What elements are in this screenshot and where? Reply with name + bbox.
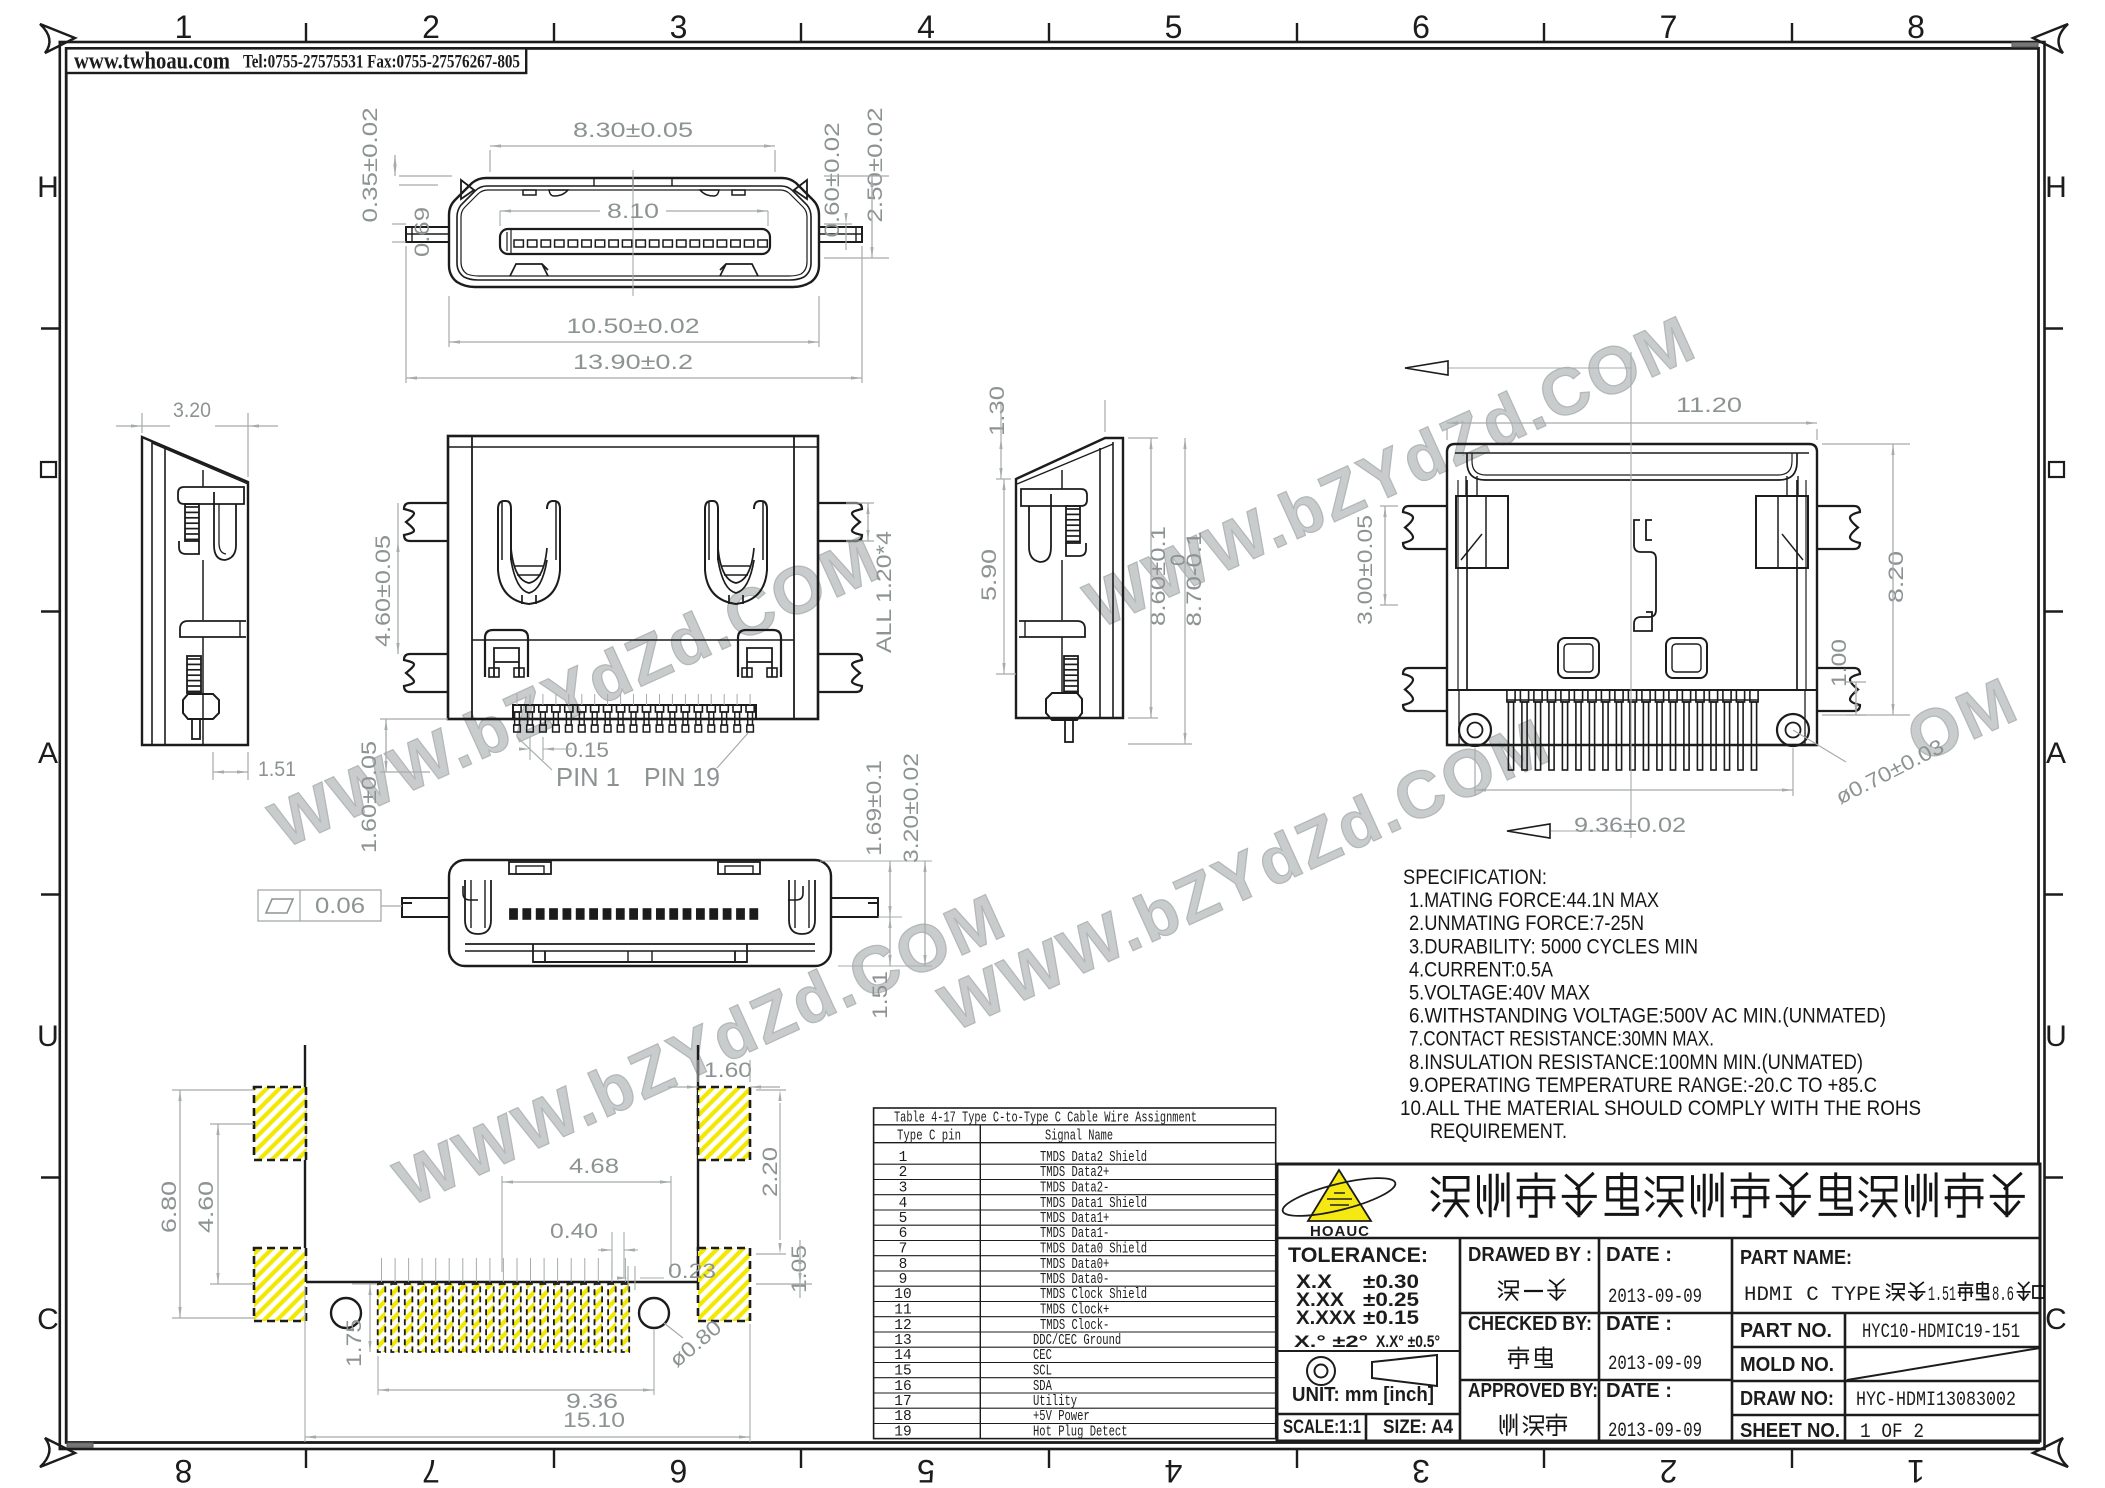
- svg-text:10.ALL THE MATERIAL SHOULD COM: 10.ALL THE MATERIAL SHOULD COMPLY WITH T…: [1400, 1096, 1921, 1120]
- svg-text:Hot Plug Detect: Hot Plug Detect: [1033, 1425, 1128, 1441]
- svg-text:13: 13: [894, 1333, 911, 1349]
- svg-text:6: 6: [899, 1226, 908, 1242]
- svg-text:7.CONTACT RESISTANCE:30MN MAX.: 7.CONTACT RESISTANCE:30MN MAX.: [1409, 1027, 1714, 1051]
- svg-text:HYC-HDMI13083002: HYC-HDMI13083002: [1856, 1389, 2016, 1412]
- svg-text:9.OPERATING TEMPERATURE RANGE:: 9.OPERATING TEMPERATURE RANGE:-20.C TO +…: [1409, 1073, 1877, 1097]
- svg-text:CEC: CEC: [1033, 1348, 1052, 1364]
- svg-text:0: 0: [1167, 554, 1190, 566]
- svg-text:1.00: 1.00: [1828, 639, 1851, 687]
- svg-text:4: 4: [917, 9, 935, 45]
- svg-text:X.X° ±0.5°: X.X° ±0.5°: [1376, 1332, 1440, 1351]
- svg-text:8: 8: [175, 1453, 193, 1488]
- svg-text:TMDS Data2 Shield: TMDS Data2 Shield: [1040, 1150, 1147, 1166]
- svg-text:1.75: 1.75: [343, 1319, 366, 1367]
- svg-text:REQUIREMENT.: REQUIREMENT.: [1430, 1119, 1567, 1143]
- svg-text:5: 5: [899, 1211, 908, 1227]
- svg-text:3: 3: [899, 1181, 908, 1197]
- svg-text:0.60±0.02: 0.60±0.02: [821, 123, 844, 238]
- svg-text:Utility: Utility: [1033, 1394, 1077, 1410]
- svg-text:DRAWED BY :: DRAWED BY :: [1468, 1244, 1592, 1266]
- svg-text:4.68: 4.68: [569, 1155, 619, 1178]
- svg-text:8.20: 8.20: [1885, 551, 1908, 603]
- svg-text:SPECIFICATION:: SPECIFICATION:: [1403, 865, 1547, 889]
- svg-text:2: 2: [899, 1165, 908, 1181]
- svg-text:5.90: 5.90: [978, 549, 1001, 601]
- svg-text:8.70-0.1: 8.70-0.1: [1183, 532, 1206, 627]
- svg-text:4.CURRENT:0.5A: 4.CURRENT:0.5A: [1409, 957, 1554, 981]
- svg-text:0.15: 0.15: [565, 739, 609, 762]
- svg-text:16: 16: [894, 1379, 911, 1395]
- svg-text:C: C: [37, 1303, 59, 1336]
- svg-text:2013-09-09: 2013-09-09: [1608, 1353, 1702, 1376]
- svg-text:+5V Power: +5V Power: [1033, 1409, 1090, 1425]
- svg-text:UNIT: mm [inch]: UNIT: mm [inch]: [1292, 1384, 1434, 1406]
- svg-text:SDA: SDA: [1033, 1379, 1052, 1395]
- svg-text:0.69: 0.69: [411, 207, 434, 257]
- svg-text:U: U: [2045, 1020, 2067, 1053]
- svg-text:2.20: 2.20: [759, 1147, 782, 1197]
- svg-text:15: 15: [894, 1364, 911, 1380]
- svg-text:1.60±0.05: 1.60±0.05: [358, 741, 381, 853]
- svg-text:10.50±0.02: 10.50±0.02: [567, 315, 700, 338]
- svg-text:5.VOLTAGE:40V MAX: 5.VOLTAGE:40V MAX: [1409, 981, 1590, 1005]
- svg-text:8.30±0.05: 8.30±0.05: [573, 119, 693, 142]
- svg-text:TMDS Data2-: TMDS Data2-: [1040, 1181, 1109, 1197]
- svg-text:TMDS Clock+: TMDS Clock+: [1040, 1303, 1109, 1319]
- svg-text:0.35±0.02: 0.35±0.02: [359, 108, 382, 223]
- svg-text:11.20: 11.20: [1676, 394, 1742, 417]
- svg-text:C: C: [2045, 1303, 2067, 1336]
- svg-text:11: 11: [894, 1303, 911, 1319]
- svg-text:1.60: 1.60: [704, 1059, 752, 1082]
- svg-text:CHECKED BY:: CHECKED BY:: [1468, 1313, 1592, 1335]
- svg-text:14: 14: [894, 1348, 911, 1364]
- svg-text:1: 1: [175, 9, 193, 45]
- svg-text:3: 3: [670, 9, 688, 45]
- svg-text:Type C pin: Type C pin: [897, 1129, 961, 1145]
- svg-text:PIN 1: PIN 1: [556, 762, 620, 792]
- svg-text:TMDS Data1 Shield: TMDS Data1 Shield: [1040, 1196, 1147, 1212]
- svg-text:DATE :: DATE :: [1606, 1380, 1672, 1402]
- svg-text:DATE :: DATE :: [1606, 1244, 1672, 1266]
- svg-text:DATE :: DATE :: [1606, 1313, 1672, 1335]
- svg-text:15.10: 15.10: [563, 1409, 625, 1432]
- svg-text:17: 17: [894, 1394, 911, 1410]
- svg-text:3.DURABILITY: 5000 CYCLES MIN: 3.DURABILITY: 5000 CYCLES MIN: [1409, 934, 1698, 958]
- svg-text:7: 7: [899, 1242, 908, 1258]
- svg-text:8.INSULATION RESISTANCE:100MN: 8.INSULATION RESISTANCE:100MN MIN.(UNMAT…: [1409, 1050, 1863, 1074]
- svg-text:2013-09-09: 2013-09-09: [1608, 1286, 1702, 1309]
- svg-text:8.6: 8.6: [1992, 1284, 2014, 1307]
- svg-text:4: 4: [899, 1196, 908, 1212]
- svg-text:5: 5: [1165, 9, 1183, 45]
- svg-text:10: 10: [894, 1287, 911, 1303]
- svg-text:HYC10-HDMIC19-151: HYC10-HDMIC19-151: [1862, 1321, 2020, 1344]
- svg-text:TMDS Data0+: TMDS Data0+: [1040, 1257, 1109, 1273]
- svg-text:www.twhoau.com: www.twhoau.com: [74, 49, 230, 75]
- svg-text:2: 2: [422, 9, 440, 45]
- svg-text:7: 7: [1660, 9, 1678, 45]
- svg-text:SIZE: A4: SIZE: A4: [1383, 1417, 1453, 1438]
- svg-text:6: 6: [1412, 9, 1430, 45]
- svg-text:Tel:0755-27575531 Fax:0755-27: Tel:0755-27575531 Fax:0755-27576267-805: [243, 52, 520, 73]
- svg-text:Table 4-17 Type C-to-Type C Ca: Table 4-17 Type C-to-Type C Cable Wire A…: [894, 1111, 1197, 1127]
- svg-text:TMDS Data0-: TMDS Data0-: [1040, 1272, 1109, 1288]
- svg-text:U: U: [37, 1020, 59, 1053]
- svg-text:TMDS Data0 Shield: TMDS Data0 Shield: [1040, 1242, 1147, 1258]
- svg-text:1: 1: [899, 1150, 908, 1166]
- svg-text:0.23: 0.23: [668, 1260, 716, 1283]
- svg-text:6: 6: [670, 1453, 688, 1488]
- svg-text:2.50±0.02: 2.50±0.02: [864, 108, 887, 223]
- svg-text:TOLERANCE:: TOLERANCE:: [1288, 1244, 1428, 1267]
- svg-text:5: 5: [917, 1453, 935, 1488]
- svg-text:PIN 19: PIN 19: [644, 762, 720, 792]
- svg-text:H: H: [2045, 171, 2067, 204]
- svg-text:1.MATING FORCE:44.1N MAX: 1.MATING FORCE:44.1N MAX: [1409, 888, 1659, 912]
- svg-text:1.51: 1.51: [1928, 1284, 1956, 1307]
- svg-text:19: 19: [894, 1425, 911, 1441]
- svg-text:TMDS Clock-: TMDS Clock-: [1040, 1318, 1109, 1334]
- svg-text:13.90±0.2: 13.90±0.2: [573, 351, 693, 374]
- svg-text:3.20±0.02: 3.20±0.02: [900, 753, 923, 863]
- svg-text:7: 7: [422, 1453, 440, 1488]
- svg-text:6.WITHSTANDING VOLTAGE:500V AC: 6.WITHSTANDING VOLTAGE:500V AC MIN.(UNMA…: [1409, 1004, 1886, 1028]
- svg-text:A: A: [2046, 737, 2066, 770]
- svg-text:TMDS Data1-: TMDS Data1-: [1040, 1226, 1109, 1242]
- svg-text:X.° ±2°: X.° ±2°: [1294, 1332, 1368, 1351]
- svg-text:TMDS Clock Shield: TMDS Clock Shield: [1040, 1287, 1147, 1303]
- svg-text:0.40: 0.40: [550, 1220, 598, 1243]
- svg-text:1.30: 1.30: [986, 386, 1009, 436]
- svg-text:HDMI C TYPE: HDMI C TYPE: [1744, 1284, 1881, 1307]
- svg-text:TMDS Data1+: TMDS Data1+: [1040, 1211, 1109, 1227]
- svg-text:PART NO.: PART NO.: [1740, 1320, 1832, 1342]
- svg-text:PART NAME:: PART NAME:: [1740, 1247, 1852, 1269]
- svg-text:6.80: 6.80: [158, 1181, 181, 1233]
- svg-text:2013-09-09: 2013-09-09: [1608, 1420, 1702, 1443]
- svg-text:2: 2: [1660, 1453, 1678, 1488]
- svg-text:3.00±0.05: 3.00±0.05: [1354, 515, 1377, 625]
- svg-text:3.20: 3.20: [173, 399, 211, 422]
- svg-text:SCALE:1:1: SCALE:1:1: [1283, 1417, 1361, 1438]
- svg-text:1 OF 2: 1 OF 2: [1860, 1421, 1924, 1444]
- svg-text:9: 9: [899, 1272, 908, 1288]
- svg-text:0.06: 0.06: [315, 893, 365, 918]
- svg-text:8.10: 8.10: [607, 200, 659, 223]
- svg-text:ALL 1.20*4: ALL 1.20*4: [873, 531, 896, 653]
- svg-text:4.60±0.05: 4.60±0.05: [372, 535, 395, 647]
- svg-text:8: 8: [899, 1257, 908, 1273]
- svg-text:±0.15: ±0.15: [1363, 1308, 1419, 1329]
- svg-text:2.UNMATING FORCE:7-25N: 2.UNMATING FORCE:7-25N: [1409, 911, 1644, 935]
- svg-text:H: H: [37, 171, 59, 204]
- svg-text:12: 12: [894, 1318, 911, 1334]
- svg-text:DDC/CEC Ground: DDC/CEC Ground: [1033, 1333, 1121, 1349]
- svg-text:SCL: SCL: [1033, 1364, 1052, 1380]
- svg-text:A: A: [38, 737, 58, 770]
- svg-text:HOAUC: HOAUC: [1310, 1223, 1370, 1240]
- svg-text:MOLD NO.: MOLD NO.: [1740, 1354, 1834, 1376]
- svg-text:1: 1: [1907, 1453, 1925, 1488]
- svg-text:4: 4: [1165, 1453, 1183, 1488]
- svg-text:Signal Name: Signal Name: [1045, 1129, 1113, 1145]
- svg-text:X.XXX: X.XXX: [1296, 1308, 1356, 1329]
- svg-text:4.60: 4.60: [195, 1181, 218, 1233]
- svg-text:3: 3: [1412, 1453, 1430, 1488]
- svg-text:18: 18: [894, 1409, 911, 1425]
- svg-text:SHEET NO.: SHEET NO.: [1740, 1420, 1840, 1442]
- svg-text:8: 8: [1907, 9, 1925, 45]
- svg-text:1.69±0.1: 1.69±0.1: [863, 760, 886, 856]
- svg-text:9.36±0.02: 9.36±0.02: [1574, 814, 1686, 837]
- svg-text:1.51: 1.51: [258, 758, 296, 781]
- svg-text:DRAW NO:: DRAW NO:: [1740, 1388, 1834, 1410]
- svg-text:APPROVED BY:: APPROVED BY:: [1468, 1380, 1598, 1402]
- svg-text:TMDS Data2+: TMDS Data2+: [1040, 1165, 1109, 1181]
- svg-text:1.51: 1.51: [869, 971, 892, 1019]
